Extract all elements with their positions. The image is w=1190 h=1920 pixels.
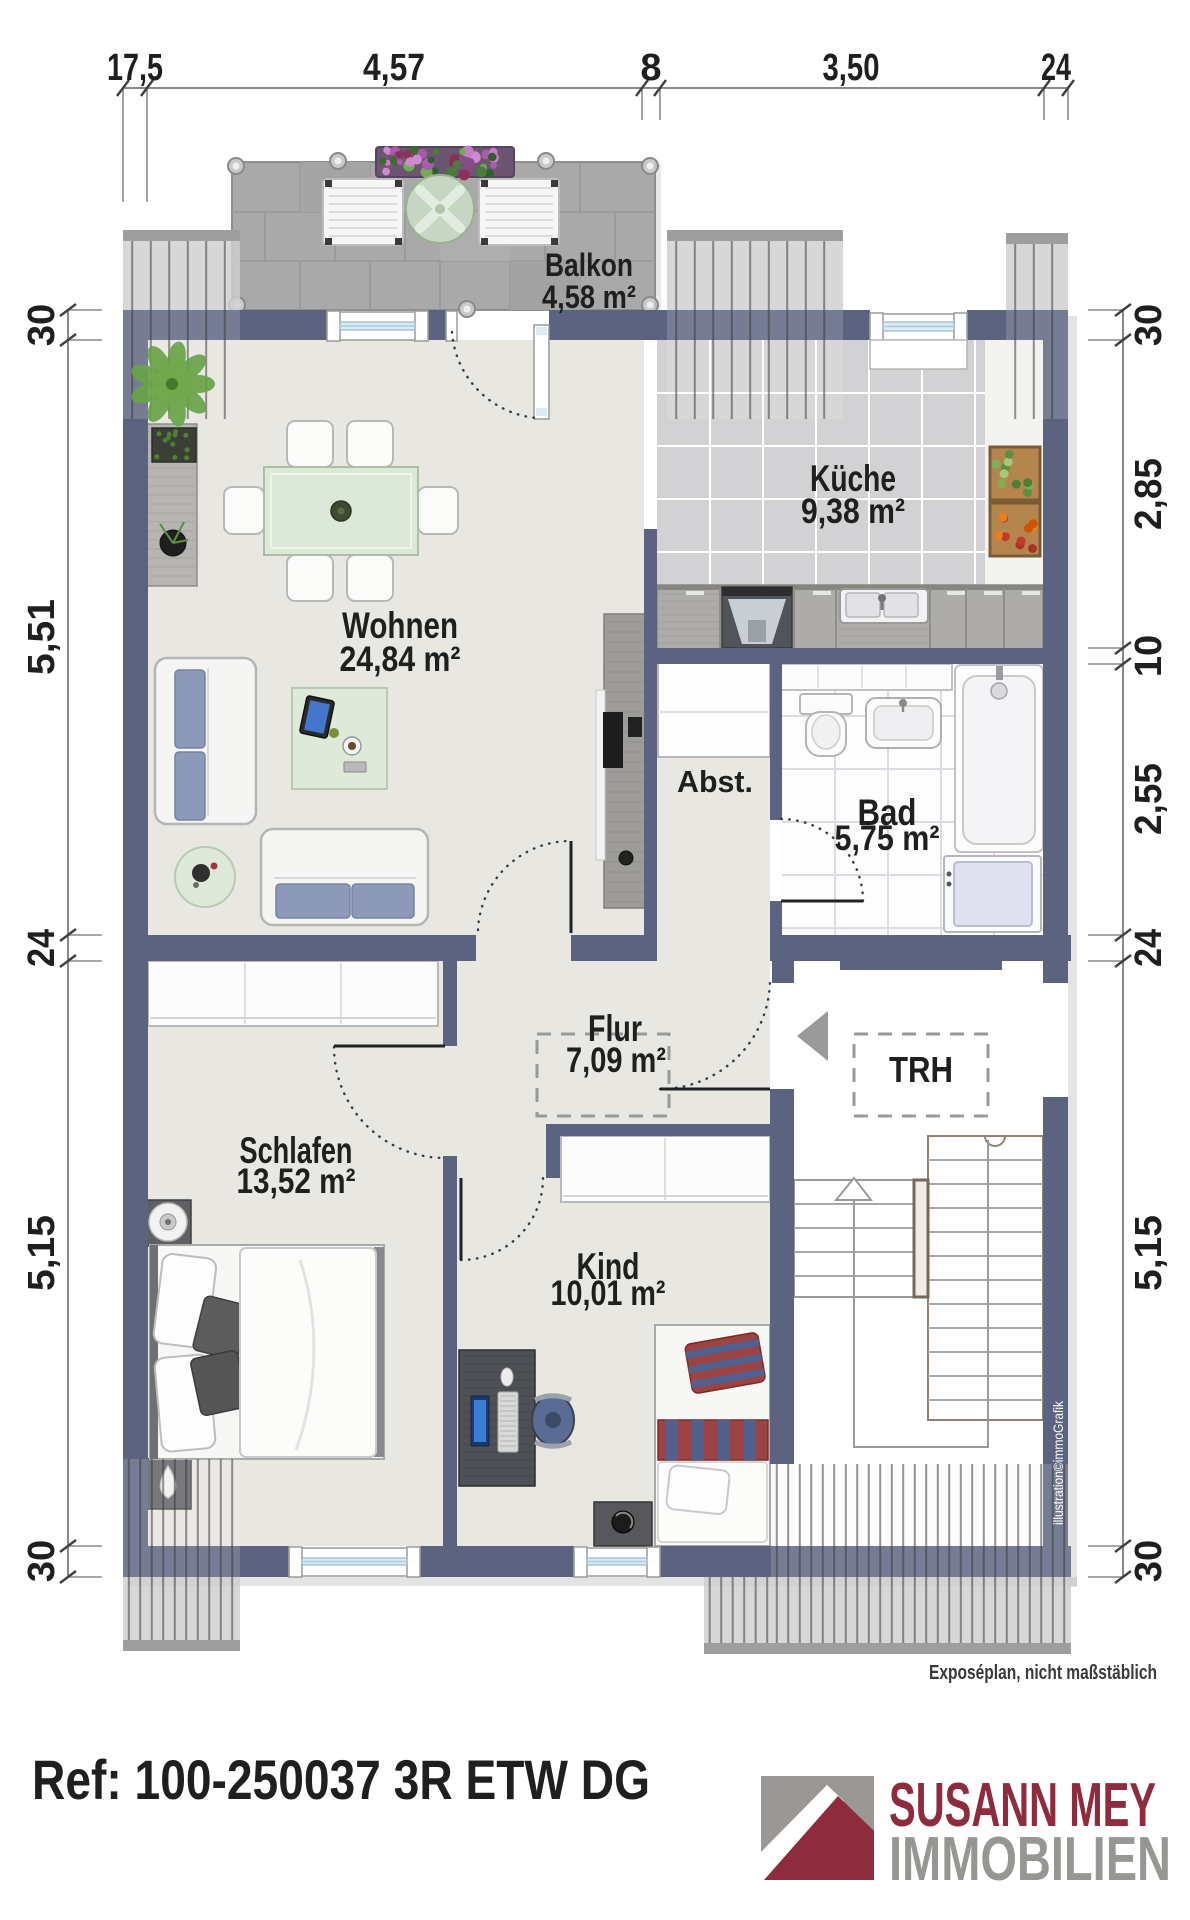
svg-text:24: 24 — [1128, 929, 1170, 967]
svg-text:Ref: 100-250037 3R ETW DG: Ref: 100-250037 3R ETW DG — [32, 1748, 650, 1811]
svg-text:30: 30 — [21, 1540, 63, 1582]
svg-text:4,58 m²: 4,58 m² — [542, 279, 636, 315]
svg-text:5,75 m²: 5,75 m² — [835, 819, 940, 858]
svg-text:24: 24 — [21, 929, 63, 967]
svg-text:2,85: 2,85 — [1128, 458, 1170, 530]
svg-text:Abst.: Abst. — [677, 764, 753, 799]
svg-text:24,84 m²: 24,84 m² — [340, 640, 461, 679]
svg-text:13,52 m²: 13,52 m² — [237, 1162, 356, 1201]
svg-text:Exposéplan, nicht maßstäblich: Exposéplan, nicht maßstäblich — [929, 1662, 1157, 1684]
svg-text:7,09 m²: 7,09 m² — [566, 1041, 666, 1080]
svg-text:illustration©immoGrafik: illustration©immoGrafik — [1050, 1400, 1066, 1525]
svg-text:30: 30 — [21, 304, 63, 346]
svg-text:10,01 m²: 10,01 m² — [551, 1274, 666, 1313]
svg-text:30: 30 — [1128, 304, 1170, 346]
svg-text:17,5: 17,5 — [107, 47, 163, 89]
svg-text:30: 30 — [1128, 1540, 1170, 1582]
svg-text:8: 8 — [640, 47, 661, 89]
svg-text:2,55: 2,55 — [1128, 763, 1170, 835]
svg-text:TRH: TRH — [889, 1049, 953, 1090]
svg-text:24: 24 — [1041, 47, 1071, 89]
svg-text:3,50: 3,50 — [823, 47, 880, 89]
svg-text:9,38 m²: 9,38 m² — [801, 492, 905, 531]
svg-text:5,51: 5,51 — [21, 599, 63, 675]
svg-text:Balkon: Balkon — [545, 247, 633, 283]
svg-text:10: 10 — [1128, 635, 1170, 677]
svg-text:IMMOBILIEN: IMMOBILIEN — [889, 1825, 1171, 1894]
svg-text:4,57: 4,57 — [363, 47, 425, 89]
svg-text:5,15: 5,15 — [21, 1215, 63, 1291]
svg-text:5,15: 5,15 — [1128, 1215, 1170, 1291]
